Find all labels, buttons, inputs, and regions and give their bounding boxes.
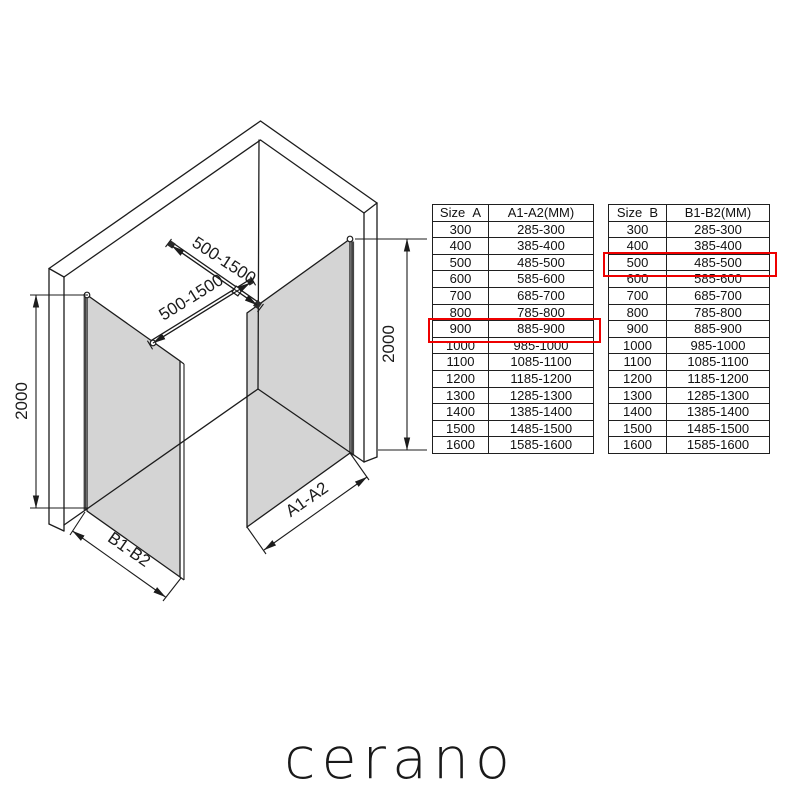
- range-cell: 1585-1600: [667, 437, 770, 454]
- range-cell: 885-900: [667, 321, 770, 338]
- size-cell: 1500: [609, 420, 667, 437]
- size-table-b-container: Size BB1-B2(MM)300285-300400385-40050048…: [608, 204, 770, 454]
- size-cell: 1600: [433, 437, 489, 454]
- table-row: 12001185-1200: [433, 370, 594, 387]
- range-cell: 1385-1400: [489, 404, 594, 421]
- range-cell: 1185-1200: [489, 370, 594, 387]
- size-cell: 1100: [433, 354, 489, 371]
- range-cell: 1485-1500: [667, 420, 770, 437]
- table-row: 11001085-1100: [609, 354, 770, 371]
- table-row: 800785-800: [609, 304, 770, 321]
- size-cell: 600: [433, 271, 489, 288]
- size-cell: 1000: [609, 337, 667, 354]
- table-row: 700685-700: [433, 287, 594, 304]
- range-cell: 1585-1600: [489, 437, 594, 454]
- size-cell: 1100: [609, 354, 667, 371]
- table-row: 300285-300: [433, 221, 594, 238]
- size-cell: 1400: [609, 404, 667, 421]
- glass-panel-b: [85, 294, 184, 580]
- table-row: 1000985-1000: [609, 337, 770, 354]
- size-cell: 800: [609, 304, 667, 321]
- size-cell: 1200: [609, 370, 667, 387]
- size-cell: 700: [609, 287, 667, 304]
- range-cell: 1285-1300: [667, 387, 770, 404]
- table-row: 13001285-1300: [609, 387, 770, 404]
- range-cell: 785-800: [667, 304, 770, 321]
- table-row: 16001585-1600: [609, 437, 770, 454]
- size-cell: 1400: [433, 404, 489, 421]
- range-cell: 485-500: [489, 254, 594, 271]
- highlight-row-500-table-b: [603, 252, 777, 277]
- table-row: 300285-300: [609, 221, 770, 238]
- size-cell: 1500: [433, 420, 489, 437]
- table-row: 15001485-1500: [433, 420, 594, 437]
- size-cell: 1600: [609, 437, 667, 454]
- size-cell: 900: [609, 321, 667, 338]
- size-cell: 400: [433, 238, 489, 255]
- dim-height-right: 2000: [355, 239, 427, 450]
- range-cell: 985-1000: [667, 337, 770, 354]
- range-cell: 1385-1400: [667, 404, 770, 421]
- range-cell: 685-700: [667, 287, 770, 304]
- size-cell: 1200: [433, 370, 489, 387]
- size-cell: 700: [433, 287, 489, 304]
- range-cell: 1085-1100: [489, 354, 594, 371]
- size-cell: 300: [433, 221, 489, 238]
- dim-height-left: 2000: [12, 295, 88, 508]
- highlight-row-900-table-a: [428, 318, 601, 343]
- size-cell: 1300: [609, 387, 667, 404]
- column-header-0: Size A: [433, 205, 489, 222]
- dim-label-height-left: 2000: [12, 382, 31, 420]
- range-cell: 1085-1100: [667, 354, 770, 371]
- size-table-b: Size BB1-B2(MM)300285-300400385-40050048…: [608, 204, 770, 454]
- range-cell: 285-300: [489, 221, 594, 238]
- range-cell: 685-700: [489, 287, 594, 304]
- table-row: 15001485-1500: [609, 420, 770, 437]
- range-cell: 585-600: [489, 271, 594, 288]
- table-row: 14001385-1400: [609, 404, 770, 421]
- column-header-1: A1-A2(MM): [489, 205, 594, 222]
- header-row: Size AA1-A2(MM): [433, 205, 594, 222]
- range-cell: 1185-1200: [667, 370, 770, 387]
- range-cell: 1485-1500: [489, 420, 594, 437]
- table-row: 16001585-1600: [433, 437, 594, 454]
- column-header-0: Size B: [609, 205, 667, 222]
- range-cell: 285-300: [667, 221, 770, 238]
- column-header-1: B1-B2(MM): [667, 205, 770, 222]
- size-cell: 300: [609, 221, 667, 238]
- range-cell: 1285-1300: [489, 387, 594, 404]
- glass-panel-a: [247, 239, 353, 527]
- header-row: Size BB1-B2(MM): [609, 205, 770, 222]
- size-cell: 500: [433, 254, 489, 271]
- table-row: 12001185-1200: [609, 370, 770, 387]
- brand-logo: cerano: [0, 726, 800, 792]
- table-row: 900885-900: [609, 321, 770, 338]
- table-row: 700685-700: [609, 287, 770, 304]
- range-cell: 385-400: [489, 238, 594, 255]
- table-row: 11001085-1100: [433, 354, 594, 371]
- size-cell: 1300: [433, 387, 489, 404]
- table-row: 600585-600: [433, 271, 594, 288]
- table-row: 400385-400: [433, 238, 594, 255]
- table-row: 14001385-1400: [433, 404, 594, 421]
- dim-label-bar-top: 500-1500: [189, 233, 260, 288]
- table-row: 13001285-1300: [433, 387, 594, 404]
- dim-label-height-right: 2000: [379, 325, 398, 363]
- table-row: 500485-500: [433, 254, 594, 271]
